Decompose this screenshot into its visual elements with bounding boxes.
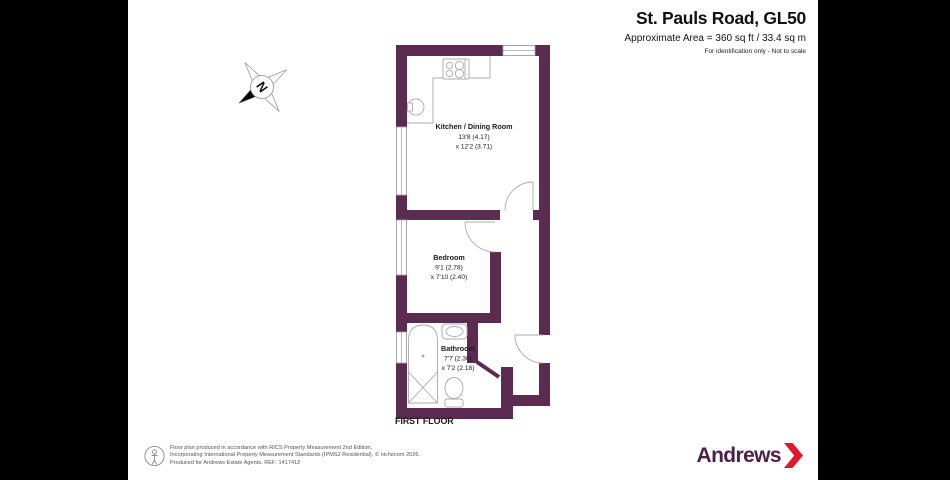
window bbox=[397, 127, 407, 195]
bathroom-door-leaf bbox=[477, 362, 499, 377]
room-dim-label: x 7'10 (2.40) bbox=[431, 274, 467, 281]
door-swing bbox=[465, 222, 495, 252]
window bbox=[397, 332, 407, 363]
walls bbox=[396, 45, 550, 419]
room-dim-label: x 7'2 (2.18) bbox=[442, 365, 475, 372]
wall bbox=[513, 395, 550, 406]
disclaimer-line-2: Incorporating International Property Mea… bbox=[170, 452, 420, 459]
window bbox=[503, 46, 535, 56]
andrews-logo: Andrews bbox=[697, 443, 804, 468]
measurement-standard-icon bbox=[144, 445, 165, 476]
room-name-label: Bedroom bbox=[433, 253, 465, 262]
hob-icon bbox=[443, 59, 469, 79]
disclaimer-line-3: Produced for Andrews Estate Agents. REF:… bbox=[170, 460, 420, 467]
wall bbox=[407, 313, 501, 323]
compass-icon: N bbox=[222, 45, 304, 127]
window bbox=[397, 220, 407, 275]
floorplan-page: St. Pauls Road, GL50 Approximate Area = … bbox=[0, 0, 950, 480]
floorplan-drawing: N bbox=[0, 0, 950, 480]
basin-icon bbox=[442, 324, 467, 339]
door-swing bbox=[515, 335, 543, 363]
brand-name: Andrews bbox=[697, 444, 782, 468]
toilet-icon bbox=[445, 378, 463, 408]
brand-chevron-icon bbox=[784, 443, 803, 468]
wall bbox=[407, 210, 500, 220]
wall bbox=[533, 210, 539, 220]
room-name-label: Bathroom bbox=[441, 344, 475, 353]
sink-icon bbox=[408, 99, 425, 115]
footer-block: Floor plan produced in accordance with R… bbox=[144, 445, 420, 476]
room-dim-label: 9'1 (2.78) bbox=[435, 265, 463, 272]
first-floor-label: FIRST FLOOR bbox=[395, 416, 454, 426]
room-name-label: Kitchen / Dining Room bbox=[435, 122, 512, 131]
wall bbox=[490, 252, 501, 323]
bath-icon bbox=[409, 325, 438, 403]
room-dim-label: x 12'2 (3.71) bbox=[456, 144, 492, 151]
entrance-door-gap bbox=[539, 335, 550, 363]
room-dim-label: 13'8 (4.17) bbox=[458, 134, 489, 141]
room-dim-label: 7'7 (2.30) bbox=[444, 356, 472, 363]
wall bbox=[501, 367, 513, 408]
door-swing bbox=[505, 182, 533, 210]
